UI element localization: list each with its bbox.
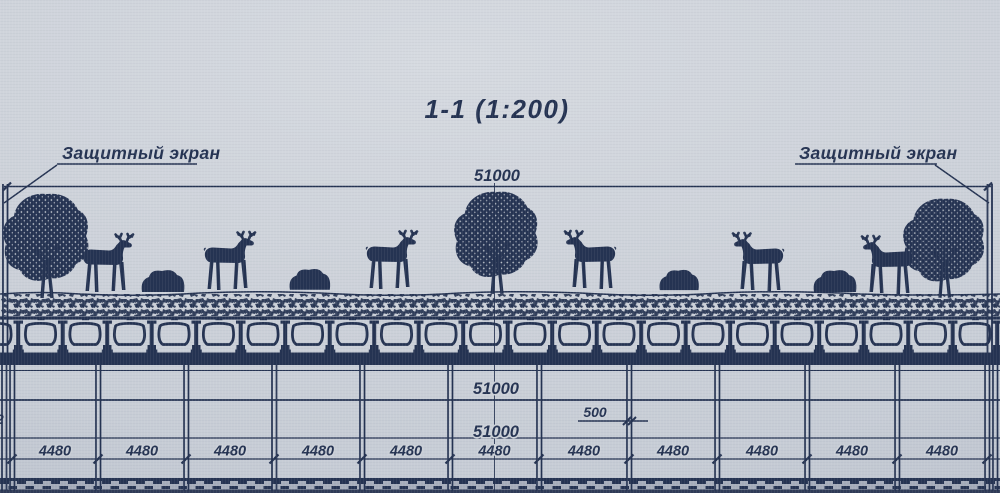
- tree-icon: [454, 192, 538, 294]
- bay-dimension-label: 4480: [213, 444, 246, 460]
- bush-icon: [814, 270, 857, 292]
- girder-unit: [25, 318, 68, 353]
- ground: [0, 480, 1000, 493]
- bush-icon: [142, 270, 185, 292]
- girder-unit: [426, 318, 469, 353]
- deer-icon: [565, 231, 616, 289]
- pier-column: [895, 365, 900, 491]
- girder-row: [0, 318, 1000, 353]
- screen-label-right: Защитный экран: [799, 143, 958, 163]
- span-dimension-top: 51000: [474, 167, 521, 185]
- girder-unit: [337, 318, 380, 353]
- drawing-title: 1-1 (1:200): [424, 94, 569, 124]
- girder-unit: [960, 318, 1000, 353]
- pier-column: [448, 365, 453, 491]
- deer-icon: [366, 231, 417, 289]
- girder-unit: [470, 318, 513, 353]
- span-dimension-mid-upper: 51000: [473, 380, 520, 398]
- soil-layer: [0, 292, 1000, 316]
- blueprint-photo: Защитный экран Защитный экран 51000 1-1 …: [0, 0, 1000, 493]
- ecoduct-section-drawing: Защитный экран Защитный экран 51000 1-1 …: [0, 0, 1000, 493]
- bay-dimension-label: 4480: [301, 444, 334, 460]
- girder-unit: [559, 318, 602, 353]
- girder-unit: [737, 318, 780, 353]
- bay-dimension-label: 4480: [925, 444, 958, 460]
- girder-unit: [648, 318, 691, 353]
- pier-column: [10, 365, 15, 491]
- screen-label-left: Защитный экран: [62, 143, 221, 163]
- girder-unit: [114, 318, 157, 353]
- bay-dimension-label: 4480: [477, 444, 510, 460]
- girder-unit: [70, 318, 113, 353]
- pier-column: [184, 365, 189, 491]
- bay-dimension-label: 4480: [745, 444, 778, 460]
- bay-dimension-label: 4480: [389, 444, 422, 460]
- girder-unit: [381, 318, 424, 353]
- deer-icon: [204, 232, 255, 290]
- pier-column: [715, 365, 720, 491]
- bush-icon: [290, 269, 331, 290]
- pier-column: [272, 365, 277, 491]
- span-dimension-mid-lower: 51000: [473, 423, 520, 441]
- bay-dimension-label: 4480: [38, 444, 71, 460]
- pier-column: [360, 365, 365, 491]
- pier-column: [805, 365, 810, 491]
- girder-unit: [693, 318, 736, 353]
- girder-unit: [515, 318, 558, 353]
- bush-icon: [660, 270, 699, 290]
- girder-unit: [915, 318, 958, 353]
- girder-unit: [604, 318, 647, 353]
- leader-line: [935, 165, 989, 203]
- clipped-edge-text: 2: [0, 411, 4, 427]
- bay-dimension-label: 4480: [125, 444, 158, 460]
- deer-icon: [82, 234, 133, 292]
- bay-dimensions-group: 4480448044804480448044804480448044804480…: [38, 444, 958, 460]
- top-dimension: 51000: [3, 167, 992, 191]
- pier-width-label: 500: [583, 404, 607, 420]
- pier-column: [993, 365, 998, 491]
- pier-column: [985, 365, 990, 491]
- girder-unit: [203, 318, 246, 353]
- pier-column: [2, 365, 7, 491]
- tree-icon: [3, 194, 88, 298]
- pier-width-dimension: 500: [578, 404, 648, 425]
- bay-dimension-label: 4480: [567, 444, 600, 460]
- tree-icon: [903, 199, 984, 298]
- girder-unit: [871, 318, 914, 353]
- pier-column: [96, 365, 101, 491]
- pier-column: [627, 365, 632, 491]
- girder-unit: [782, 318, 825, 353]
- deer-icon: [733, 233, 784, 291]
- bay-dimension-label: 4480: [656, 444, 689, 460]
- girder-unit: [159, 318, 202, 353]
- girder-unit: [292, 318, 335, 353]
- deck-soffit-band: [0, 353, 1000, 366]
- pier-column: [537, 365, 542, 491]
- girder-unit: [248, 318, 291, 353]
- bay-dimension-label: 4480: [835, 444, 868, 460]
- girder-unit: [826, 318, 869, 353]
